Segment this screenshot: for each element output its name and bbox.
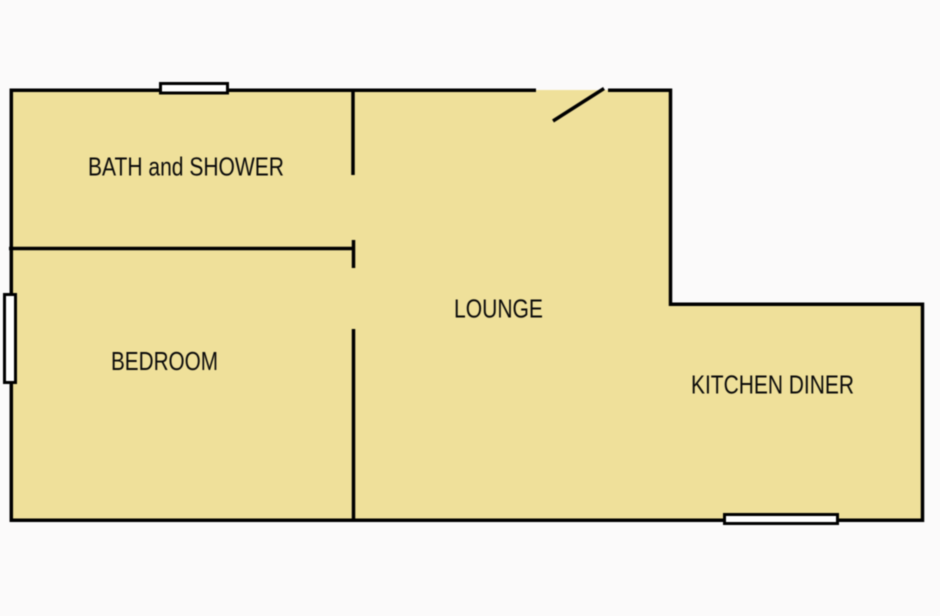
svg-text:KITCHEN DINER: KITCHEN DINER <box>691 370 854 400</box>
svg-text:LOUNGE: LOUNGE <box>454 294 543 324</box>
svg-text:BATH and SHOWER: BATH and SHOWER <box>88 152 284 182</box>
svg-text:BEDROOM: BEDROOM <box>111 346 218 376</box>
